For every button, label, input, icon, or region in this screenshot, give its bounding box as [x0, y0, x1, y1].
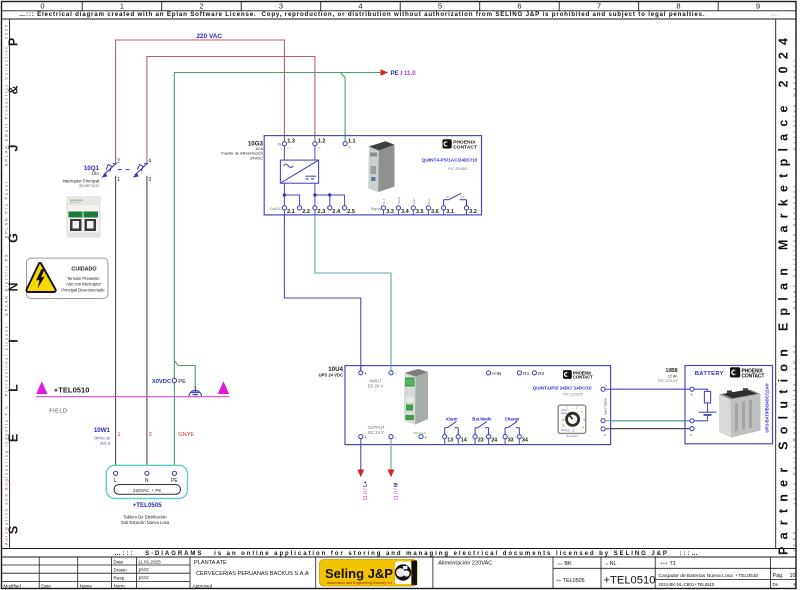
svg-text:1: 1	[118, 432, 121, 438]
svg-text:I: I	[7, 339, 21, 342]
svg-text:UPS 24 VDC: UPS 24 VDC	[319, 372, 343, 377]
svg-text:PE: PE	[171, 478, 178, 484]
svg-text:2: 2	[117, 159, 120, 165]
svg-text:1.1: 1.1	[348, 139, 356, 145]
svg-text:Resp.: Resp.	[114, 576, 126, 581]
svg-text:13.6: 13.6	[382, 198, 386, 204]
svg-text:Approved: Approved	[193, 583, 213, 588]
svg-text:4: 4	[358, 2, 362, 11]
svg-text:S: S	[7, 526, 21, 534]
svg-text:7: 7	[597, 2, 601, 11]
svg-text:PE: PE	[348, 146, 352, 150]
svg-text:CERVECERIAS PERUANAS BACKUS S.: CERVECERIAS PERUANAS BACKUS S.A.A	[196, 571, 309, 577]
svg-text:R1: R1	[523, 371, 530, 377]
svg-text:R2: R2	[538, 371, 545, 377]
svg-text:11.01.2025: 11.01.2025	[138, 559, 161, 564]
svg-text:time (min): time (min)	[566, 434, 578, 438]
svg-text:GNYE: GNYE	[178, 432, 194, 438]
svg-text:+: +	[364, 371, 367, 376]
svg-text:De: De	[773, 582, 779, 587]
svg-text:3.3: 3.3	[386, 209, 394, 215]
svg-text:JPPF: JPPF	[138, 576, 149, 581]
svg-text:Charge: Charge	[505, 416, 520, 421]
svg-text:Pág.: Pág.	[773, 573, 784, 579]
svg-text:JPPF: JPPF	[138, 568, 149, 573]
svg-text:11.0 / M: 11.0 / M	[393, 483, 399, 501]
svg-text:Seling J&P: Seling J&P	[325, 566, 393, 581]
svg-text:DC 24 V: DC 24 V	[368, 383, 384, 388]
svg-text:Cargador de Baterías Nueva Los: Cargador de Baterías Nueva Losa +TEL0510	[659, 573, 759, 579]
svg-text:::::…: ::::…	[771, 13, 778, 17]
svg-text:E: E	[7, 434, 21, 442]
svg-text:Bat.Mode: Bat.Mode	[472, 416, 492, 421]
svg-text:N: N	[145, 478, 149, 484]
svg-text:DC 24 V: DC 24 V	[368, 430, 384, 435]
svg-text:Tablero De Distribución: Tablero De Distribución	[123, 515, 167, 520]
svg-text:3.5: 3.5	[416, 209, 424, 215]
svg-text:X0VDC: X0VDC	[152, 379, 172, 385]
svg-text:L/+: L/+	[287, 146, 291, 150]
svg-text:33: 33	[508, 437, 514, 443]
svg-text:Modified: Modified	[4, 583, 22, 588]
svg-text:3: 3	[279, 2, 283, 11]
svg-text:3G1.5: 3G1.5	[100, 442, 110, 446]
svg-text:2.4: 2.4	[332, 209, 341, 215]
svg-text:IN: IN	[277, 142, 281, 146]
svg-text:3.1: 3.1	[446, 209, 454, 215]
svg-text:BATTERY: BATTERY	[695, 371, 724, 377]
svg-text:10W1: 10W1	[94, 427, 111, 434]
svg-text:2.2: 2.2	[302, 209, 310, 215]
svg-text:0: 0	[40, 2, 44, 11]
svg-text:Drawn: Drawn	[114, 568, 128, 573]
svg-text:+TEL0505: +TEL0505	[133, 502, 163, 509]
svg-text:8: 8	[676, 2, 680, 11]
svg-text:3: 3	[603, 434, 607, 436]
svg-text:CONTACT: CONTACT	[453, 144, 477, 150]
svg-text:4: 4	[148, 159, 151, 165]
svg-text:220VAC + PE: 220VAC + PE	[133, 488, 161, 493]
svg-text:9: 9	[756, 2, 760, 11]
svg-text:2.3: 2.3	[318, 209, 326, 215]
svg-text:PE / 11.0: PE / 11.0	[391, 70, 417, 77]
svg-text:SE.A9F74210: SE.A9F74210	[79, 184, 99, 188]
svg-text:PXC.1274119: PXC.1274119	[658, 379, 678, 383]
svg-text:220 VAC: 220 VAC	[197, 33, 223, 40]
svg-text:5: 5	[438, 2, 442, 11]
svg-text:3.6: 3.6	[431, 209, 439, 215]
svg-text:23: 23	[478, 437, 484, 443]
svg-text:ÖPVC-JZ: ÖPVC-JZ	[94, 437, 111, 441]
svg-text:24V 2.2 A: 24V 2.2 A	[414, 431, 426, 435]
svg-text:L: L	[114, 478, 117, 484]
svg-text:CUIDADO: CUIDADO	[71, 266, 96, 272]
svg-text:J: J	[7, 144, 21, 151]
svg-text:QUINT-UPS/ 24DC/ 24DC/10: QUINT-UPS/ 24DC/ 24DC/10	[533, 386, 592, 391]
svg-text:Signal: Signal	[371, 207, 382, 211]
svg-text:20 15: 20 15	[567, 430, 575, 433]
svg-text:Aún con interruptor: Aún con interruptor	[66, 282, 101, 287]
svg-text:+: +	[364, 435, 367, 440]
svg-text:11.0 / L+: 11.0 / L+	[363, 481, 369, 501]
svg-text:&: &	[7, 85, 21, 94]
svg-text:Alarm: Alarm	[445, 416, 457, 421]
svg-text:13: 13	[446, 195, 450, 199]
svg-text:+TEL0510: +TEL0510	[54, 386, 90, 395]
svg-text:1: 1	[120, 2, 124, 11]
svg-text:PXC.2320225: PXC.2320225	[563, 393, 583, 397]
svg-text:3.2: 3.2	[469, 209, 477, 215]
svg-text:6: 6	[517, 2, 521, 11]
svg-text:12 Ah: 12 Ah	[668, 375, 678, 379]
svg-text:+TEL0510: +TEL0510	[604, 575, 656, 587]
svg-text:2.1: 2.1	[287, 209, 295, 215]
svg-text:10B8: 10B8	[666, 368, 678, 374]
svg-text:Date: Date	[114, 559, 124, 564]
svg-text:1.3: 1.3	[287, 139, 295, 145]
svg-text:+: +	[605, 383, 608, 388]
svg-text:1.2: 1.2	[318, 139, 326, 145]
svg-text:Mode: Mode	[561, 412, 568, 415]
svg-text:Automation and Engineering Ind: Automation and Engineering Industry 4.0	[327, 581, 392, 585]
svg-text:3: 3	[148, 177, 151, 183]
svg-text:2: 2	[149, 432, 152, 438]
svg-text:Sub Estación Nueva Losa: Sub Estación Nueva Losa	[121, 520, 170, 525]
svg-text:PLANTA ATE: PLANTA ATE	[194, 560, 227, 566]
svg-text:QUINT4-PS/1AC/24DC/10: QUINT4-PS/1AC/24DC/10	[422, 158, 478, 163]
svg-text:2: 2	[199, 2, 203, 11]
svg-text:Rem: Rem	[427, 198, 431, 205]
svg-text:2.5: 2.5	[347, 209, 355, 215]
svg-text:…::: S-DIAGRAMS is an onli: …::: S-DIAGRAMS is an online application…	[114, 551, 699, 557]
svg-text:2024-BK-NL-CB01+TEL0510: 2024-BK-NL-CB01+TEL0510	[659, 582, 715, 587]
svg-text:1: 1	[117, 177, 120, 183]
svg-text:Alimentación 220VAC: Alimentación 220VAC	[438, 560, 492, 566]
svg-text:L: L	[7, 384, 21, 392]
svg-text:14: 14	[461, 437, 467, 443]
svg-text:SGnd: SGnd	[397, 197, 401, 205]
svg-text:+: +	[691, 393, 694, 398]
svg-text:CONTACT: CONTACT	[573, 375, 593, 380]
svg-text:Norm: Norm	[114, 583, 125, 588]
svg-text:n: n	[690, 433, 692, 437]
svg-text:G: G	[7, 233, 21, 243]
svg-text:24: 24	[491, 437, 497, 443]
svg-text:UPS-BAT/PB/24DC/12AH: UPS-BAT/PB/24DC/12AH	[764, 383, 769, 432]
svg-text:Name: Name	[80, 583, 93, 588]
svg-text:Principal Desconectado.: Principal Desconectado.	[61, 287, 105, 292]
svg-text:OutDC: OutDC	[270, 207, 282, 211]
svg-text:CONTACT: CONTACT	[742, 373, 765, 379]
svg-text:BATTERY: BATTERY	[604, 397, 608, 414]
svg-text:14: 14	[461, 195, 465, 199]
svg-text:PE: PE	[178, 379, 186, 385]
svg-text:Out1: Out1	[412, 198, 416, 205]
svg-text:13: 13	[447, 437, 453, 443]
svg-text:FIELD: FIELD	[49, 408, 67, 414]
svg-text:3.4: 3.4	[401, 209, 410, 215]
svg-text:I<IN: I<IN	[492, 371, 502, 377]
svg-text:P: P	[7, 38, 21, 46]
svg-text:N: N	[7, 282, 21, 291]
svg-text:10A: 10A	[92, 171, 100, 176]
svg-text:PXC.2904601: PXC.2904601	[448, 167, 468, 171]
svg-text:24VDC: 24VDC	[250, 155, 263, 160]
svg-text:Interruptor Principal: Interruptor Principal	[62, 178, 99, 183]
svg-text:+: +	[425, 435, 428, 440]
svg-text:34: 34	[522, 437, 528, 443]
svg-text:10: 10	[790, 573, 796, 579]
svg-text:Tensión Presente:: Tensión Presente:	[67, 276, 100, 281]
svg-text:N/-: N/-	[318, 146, 322, 150]
svg-text:…::: Electrical diagram create: …::: Electrical diagram created with an …	[19, 11, 705, 18]
svg-text:Date: Date	[41, 583, 51, 588]
